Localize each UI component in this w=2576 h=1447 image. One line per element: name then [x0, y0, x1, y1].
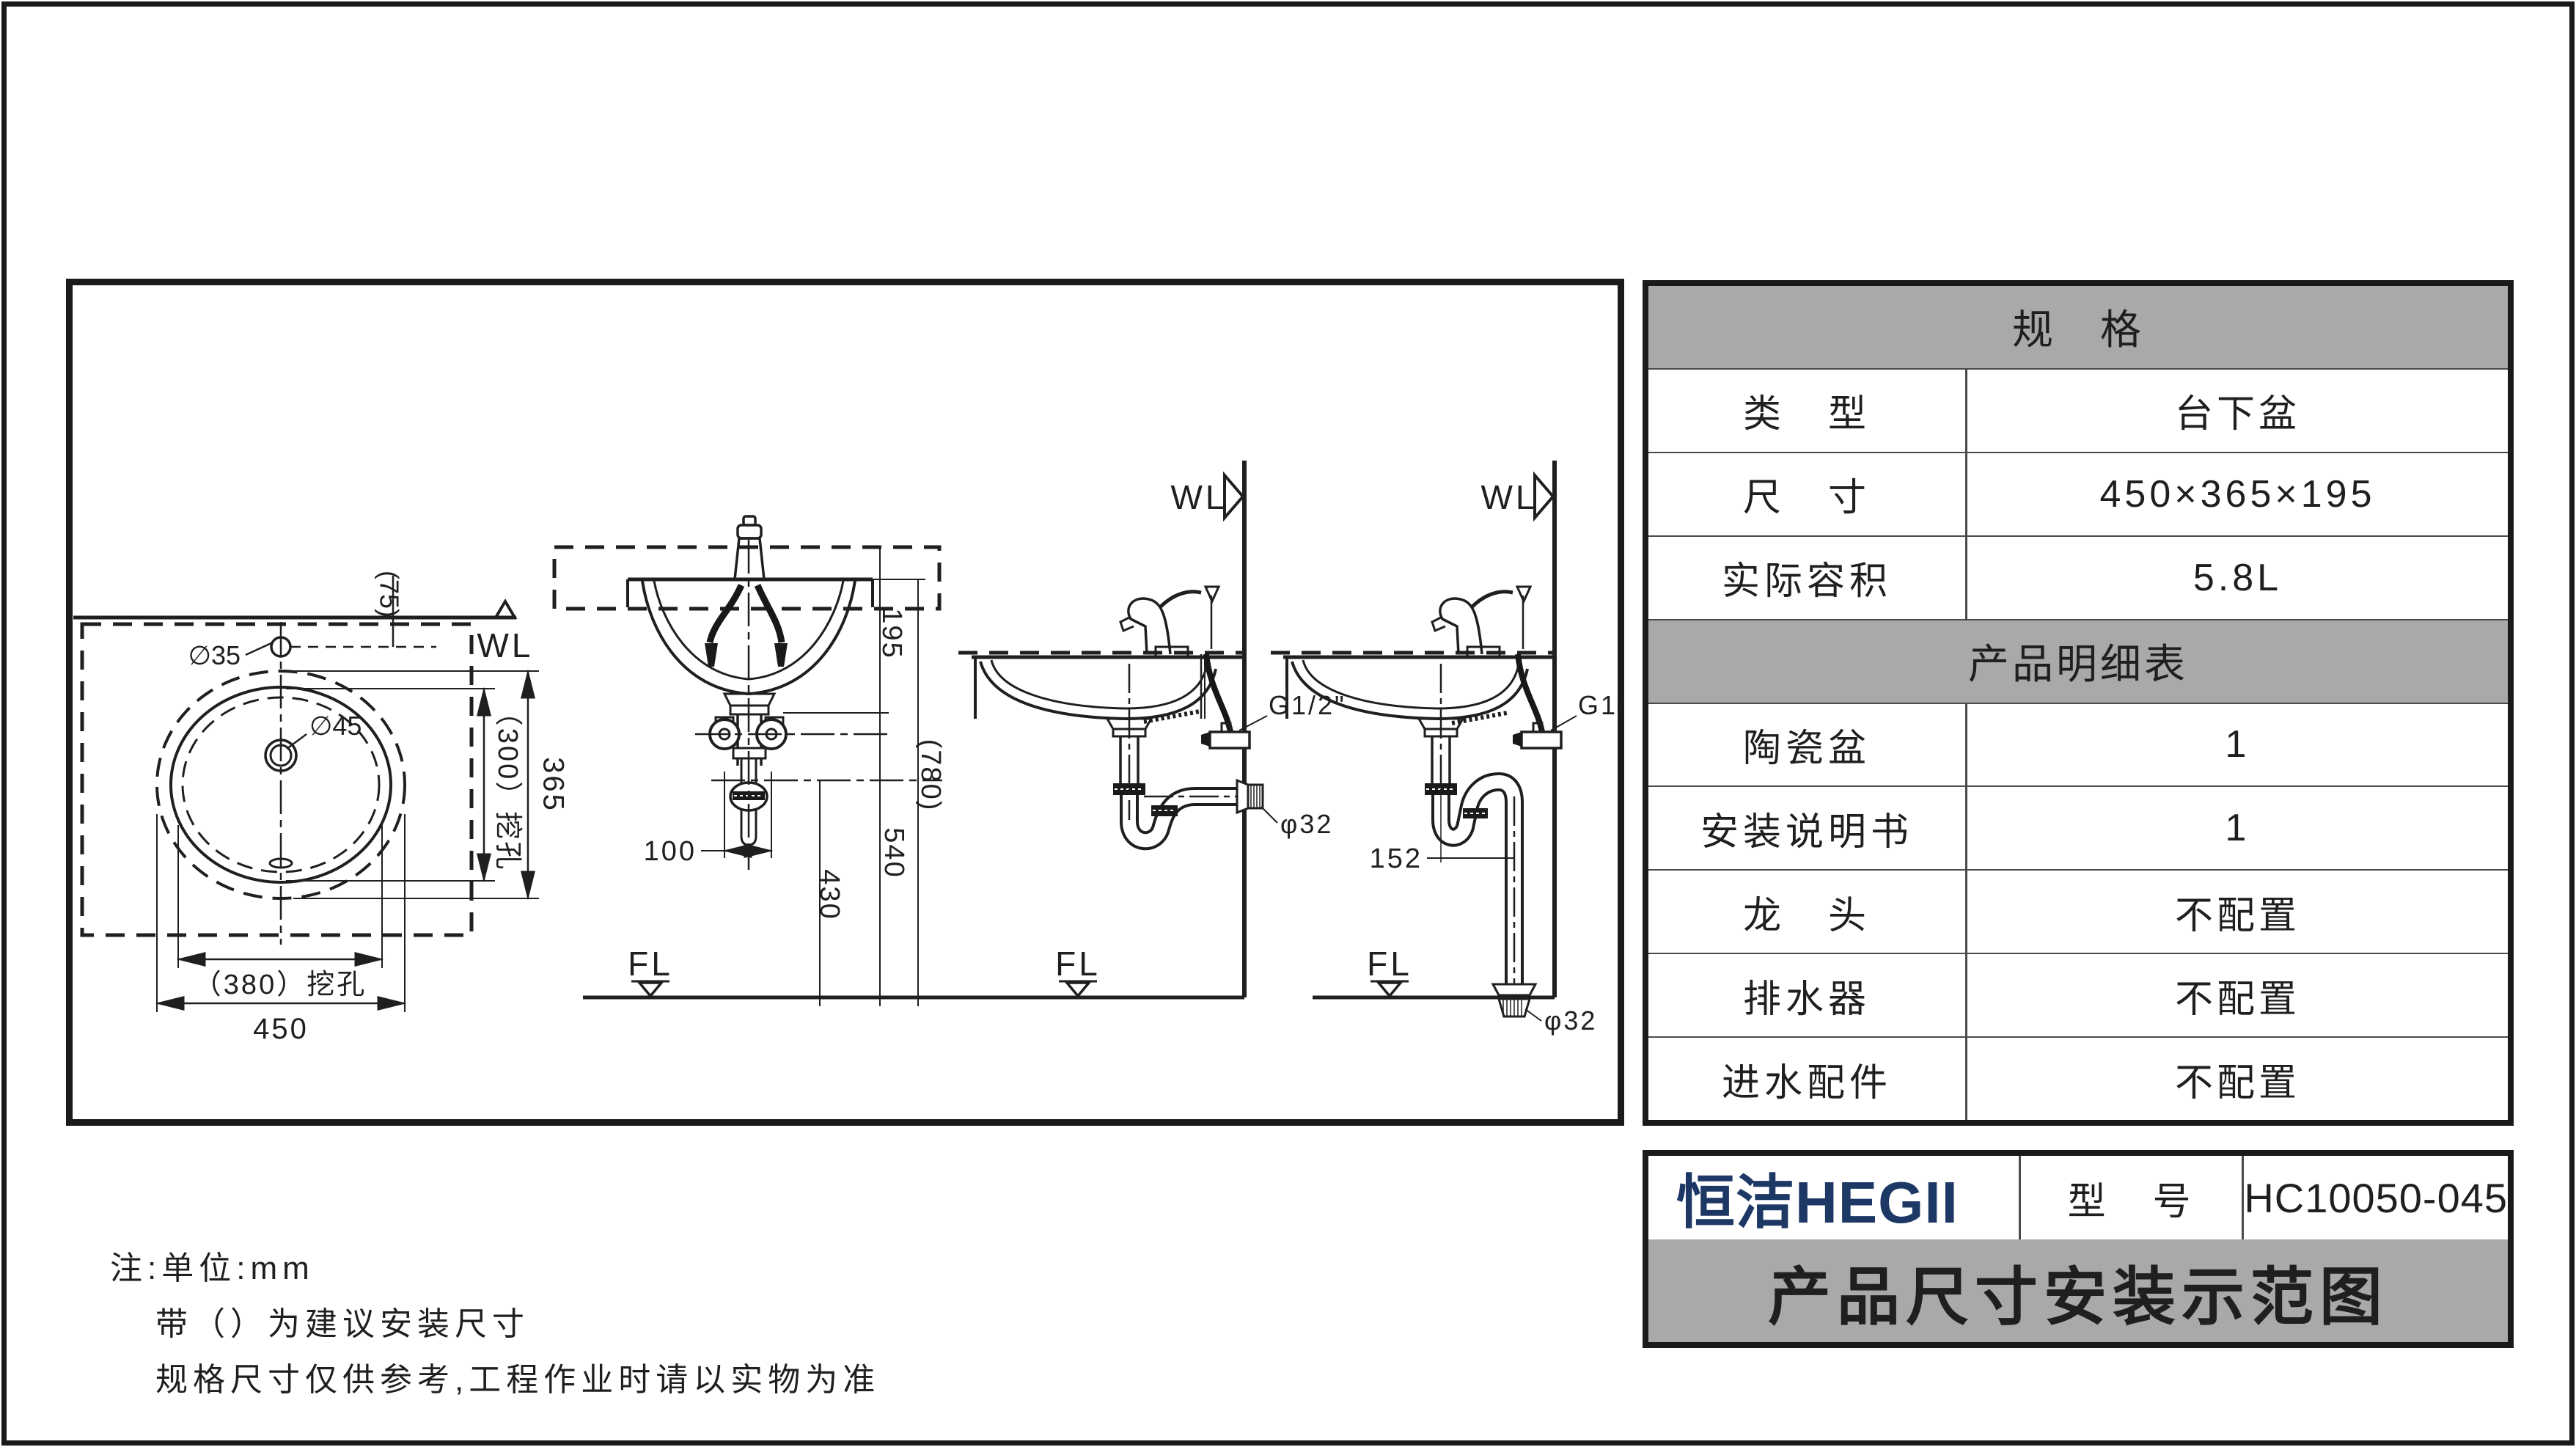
row-label: 龙 头 — [1648, 871, 1967, 953]
note-line-2: 带（）为建议安装尺寸 — [110, 1297, 880, 1352]
dim-780: (780) — [915, 739, 946, 812]
title-block: 恒洁HEGII 型 号 HC10050-045 产品尺寸安装示范图 — [1643, 1150, 2514, 1348]
outlet-dia-label: φ32 — [1544, 1005, 1597, 1036]
front-view-drawing: 195 540 (780) 430 100 FL — [554, 516, 964, 1006]
dim-152: 152 — [1370, 843, 1423, 874]
wall-outlet-fitting — [1248, 785, 1263, 808]
dim-75: (75) — [374, 571, 404, 618]
row-label: 陶瓷盆 — [1648, 704, 1967, 786]
spec-header-label: 规 格 — [2012, 297, 2144, 356]
row-value: 450×365×195 — [1967, 453, 2508, 535]
technical-drawing: WL (75) ∅35 ∅45 （380）挖孔 — [66, 279, 1624, 1126]
dim-430: 430 — [814, 869, 845, 920]
wall-drain-view-drawing: WL — [920, 461, 1346, 997]
outlet-dia-label: φ32 — [1280, 809, 1333, 839]
dim-540: 540 — [878, 827, 909, 878]
fl-marker-icon — [639, 983, 661, 996]
brand-logo: 恒洁HEGII — [1648, 1156, 2021, 1239]
angle-valve — [1210, 732, 1250, 748]
row-label: 进水配件 — [1648, 1038, 1967, 1120]
faucet-side-icon — [1120, 587, 1219, 657]
wl-up-marker-icon — [496, 601, 515, 618]
dim-cut-width: （300）挖孔 — [492, 698, 523, 871]
page: WL (75) ∅35 ∅45 （380）挖孔 — [0, 0, 2576, 1447]
fl-marker-icon — [1379, 983, 1401, 996]
faucet-side-icon — [1432, 587, 1530, 657]
title-block-top-row: 恒洁HEGII 型 号 HC10050-045 — [1648, 1156, 2508, 1239]
notes: 注:单位:mm 带（）为建议安装尺寸 规格尺寸仅供参考,工程作业时请以实物为准 — [110, 1241, 880, 1408]
fl-marker-icon — [1067, 983, 1089, 996]
inlet-thread-label: G1/2" — [1269, 690, 1346, 720]
wl-label: WL — [477, 626, 534, 664]
fl-label: FL — [1055, 945, 1101, 983]
table-row: 进水配件 不配置 — [1648, 1036, 2508, 1120]
dim-100: 100 — [644, 836, 697, 867]
row-value: 不配置 — [1967, 954, 2508, 1036]
sheet-title: 产品尺寸安装示范图 — [1648, 1239, 2508, 1342]
row-value: 台下盆 — [1967, 370, 2508, 452]
note-line-3: 规格尺寸仅供参考,工程作业时请以实物为准 — [110, 1352, 880, 1408]
row-label: 实际容积 — [1648, 537, 1967, 619]
table-row: 尺 寸 450×365×195 — [1648, 452, 2508, 535]
row-label: 安装说明书 — [1648, 787, 1967, 869]
floor-drain-view-drawing: WL — [1271, 461, 1624, 1036]
row-label: 排水器 — [1648, 954, 1967, 1036]
basin-bowl — [980, 662, 1216, 719]
angle-valve — [1522, 732, 1561, 748]
dim-width: 365 — [537, 757, 569, 813]
dim-length: 450 — [253, 1013, 309, 1045]
table-row: 实际容积 5.8L — [1648, 535, 2508, 619]
detail-header-label: 产品明细表 — [1968, 631, 2188, 691]
row-value: 5.8L — [1967, 537, 2508, 619]
wl-marker-icon — [1225, 475, 1243, 518]
row-value: 不配置 — [1967, 871, 2508, 953]
wl-label: WL — [1481, 478, 1538, 516]
dim-drain-dia: ∅45 — [309, 711, 362, 741]
row-value: 1 — [1967, 787, 2508, 869]
table-row: 龙 头 不配置 — [1648, 869, 2508, 953]
row-label: 类 型 — [1648, 370, 1967, 452]
spec-header: 规 格 — [1648, 286, 2508, 368]
fl-label: FL — [1367, 945, 1412, 983]
note-line-1: 注:单位:mm — [110, 1241, 880, 1297]
row-value: 1 — [1967, 704, 2508, 786]
dim-cut-length: （380）挖孔 — [194, 970, 367, 1000]
wl-marker-icon — [1535, 475, 1553, 518]
row-label: 尺 寸 — [1648, 453, 1967, 535]
spec-table: 规 格 类 型 台下盆 尺 寸 450×365×195 实际容积 5.8L 产品… — [1643, 280, 2514, 1126]
inlet-thread-label: G1/2" — [1578, 690, 1624, 720]
table-row: 类 型 台下盆 — [1648, 368, 2508, 452]
fl-label: FL — [628, 945, 673, 983]
table-row: 陶瓷盆 1 — [1648, 703, 2508, 786]
top-view-drawing: WL (75) ∅35 ∅45 （380）挖孔 — [73, 571, 569, 1045]
detail-header: 产品明细表 — [1648, 619, 2508, 703]
model-label: 型 号 — [2021, 1156, 2244, 1239]
dim-195: 195 — [876, 608, 907, 659]
row-value: 不配置 — [1967, 1038, 2508, 1120]
table-row: 安装说明书 1 — [1648, 785, 2508, 869]
model-number: HC10050-045 — [2244, 1156, 2508, 1239]
wl-label: WL — [1171, 478, 1228, 516]
table-row: 排水器 不配置 — [1648, 953, 2508, 1036]
dim-hole-dia: ∅35 — [188, 640, 241, 670]
